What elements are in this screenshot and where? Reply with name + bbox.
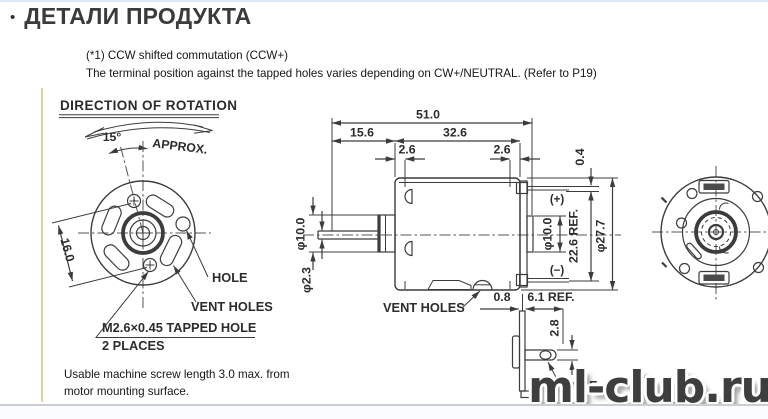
front-view: DIRECTION OF ROTATION 15° APPROX. bbox=[52, 98, 273, 353]
footnote-line-2: motor mounting surface. bbox=[64, 383, 290, 400]
end-cap-plate bbox=[520, 311, 526, 391]
technical-drawing: DIRECTION OF ROTATION 15° APPROX. bbox=[0, 0, 768, 419]
dim-16-label: 16.0 bbox=[57, 236, 77, 263]
bottom-vent-tab bbox=[428, 281, 471, 290]
tapped-hole-bottom bbox=[144, 259, 157, 272]
dim-61-label: 6.1 REF. bbox=[527, 290, 574, 304]
tapped-hole-top bbox=[128, 195, 141, 208]
rear-view bbox=[652, 166, 768, 301]
case-vent bbox=[405, 190, 412, 204]
two-places-label: 2 PLACES bbox=[102, 338, 165, 353]
rear-terminal-bottom bbox=[699, 272, 729, 285]
case-vent bbox=[405, 242, 412, 256]
angle-15-label: 15° bbox=[103, 130, 122, 144]
page: { "header": { "bullet": "•", "title": "Д… bbox=[0, 0, 768, 419]
side-view: (+) (−) 51.0 15.6 32.6 2.6 2.6 0.4 22.6 … bbox=[294, 108, 622, 316]
terminal-plus bbox=[517, 183, 570, 194]
dim-277-label: φ27.7 bbox=[594, 219, 608, 252]
rear-hole bbox=[677, 218, 687, 228]
minus-terminal-label: (−) bbox=[550, 265, 565, 277]
dim-26-left-label: 2.6 bbox=[398, 143, 415, 157]
dim-326-label: 32.6 bbox=[443, 126, 467, 140]
dim-51-label: 51.0 bbox=[416, 108, 440, 122]
dim-08-label: 0.8 bbox=[493, 290, 510, 304]
plain-hole bbox=[176, 217, 190, 231]
vent-holes-label: VENT HOLES bbox=[191, 299, 273, 314]
dim-28-label: 2.8 bbox=[548, 319, 562, 336]
direction-of-rotation-label: DIRECTION OF ROTATION bbox=[60, 98, 237, 113]
side-vent-holes-label: VENT HOLES bbox=[383, 300, 465, 315]
dim-10-front-label: φ10.0 bbox=[294, 217, 308, 250]
dim-04-label: 0.4 bbox=[573, 148, 587, 165]
bearing-flange bbox=[513, 336, 520, 368]
tapped-hole-label: M2.6×0.45 TAPPED HOLE bbox=[102, 320, 257, 335]
rear-terminal-top bbox=[699, 181, 729, 194]
dim-26-right-label: 2.6 bbox=[493, 143, 510, 157]
plus-terminal-label: (+) bbox=[550, 194, 565, 206]
rear-boss bbox=[527, 216, 533, 252]
approx-label: APPROX. bbox=[152, 136, 209, 157]
rear-hole bbox=[687, 189, 697, 199]
dim-226-label: 22.6 REF. bbox=[567, 209, 581, 263]
bottom-margin bbox=[0, 405, 768, 419]
screw-length-note: Usable machine screw length 3.0 max. fro… bbox=[64, 366, 290, 401]
end-cap bbox=[520, 181, 527, 287]
hole-label: HOLE bbox=[212, 270, 248, 285]
vent-slot bbox=[100, 204, 123, 237]
dim-23-label: φ2.3 bbox=[300, 267, 314, 293]
bottom-divider bbox=[0, 404, 768, 406]
motor-case bbox=[395, 178, 520, 290]
dim-10-rear-label: φ10.0 bbox=[541, 217, 555, 250]
terminal-hole bbox=[540, 351, 551, 359]
dim-156-label: 15.6 bbox=[350, 126, 374, 140]
footnote-line-1: Usable machine screw length 3.0 max. fro… bbox=[64, 366, 290, 383]
rear-hole bbox=[680, 264, 690, 274]
